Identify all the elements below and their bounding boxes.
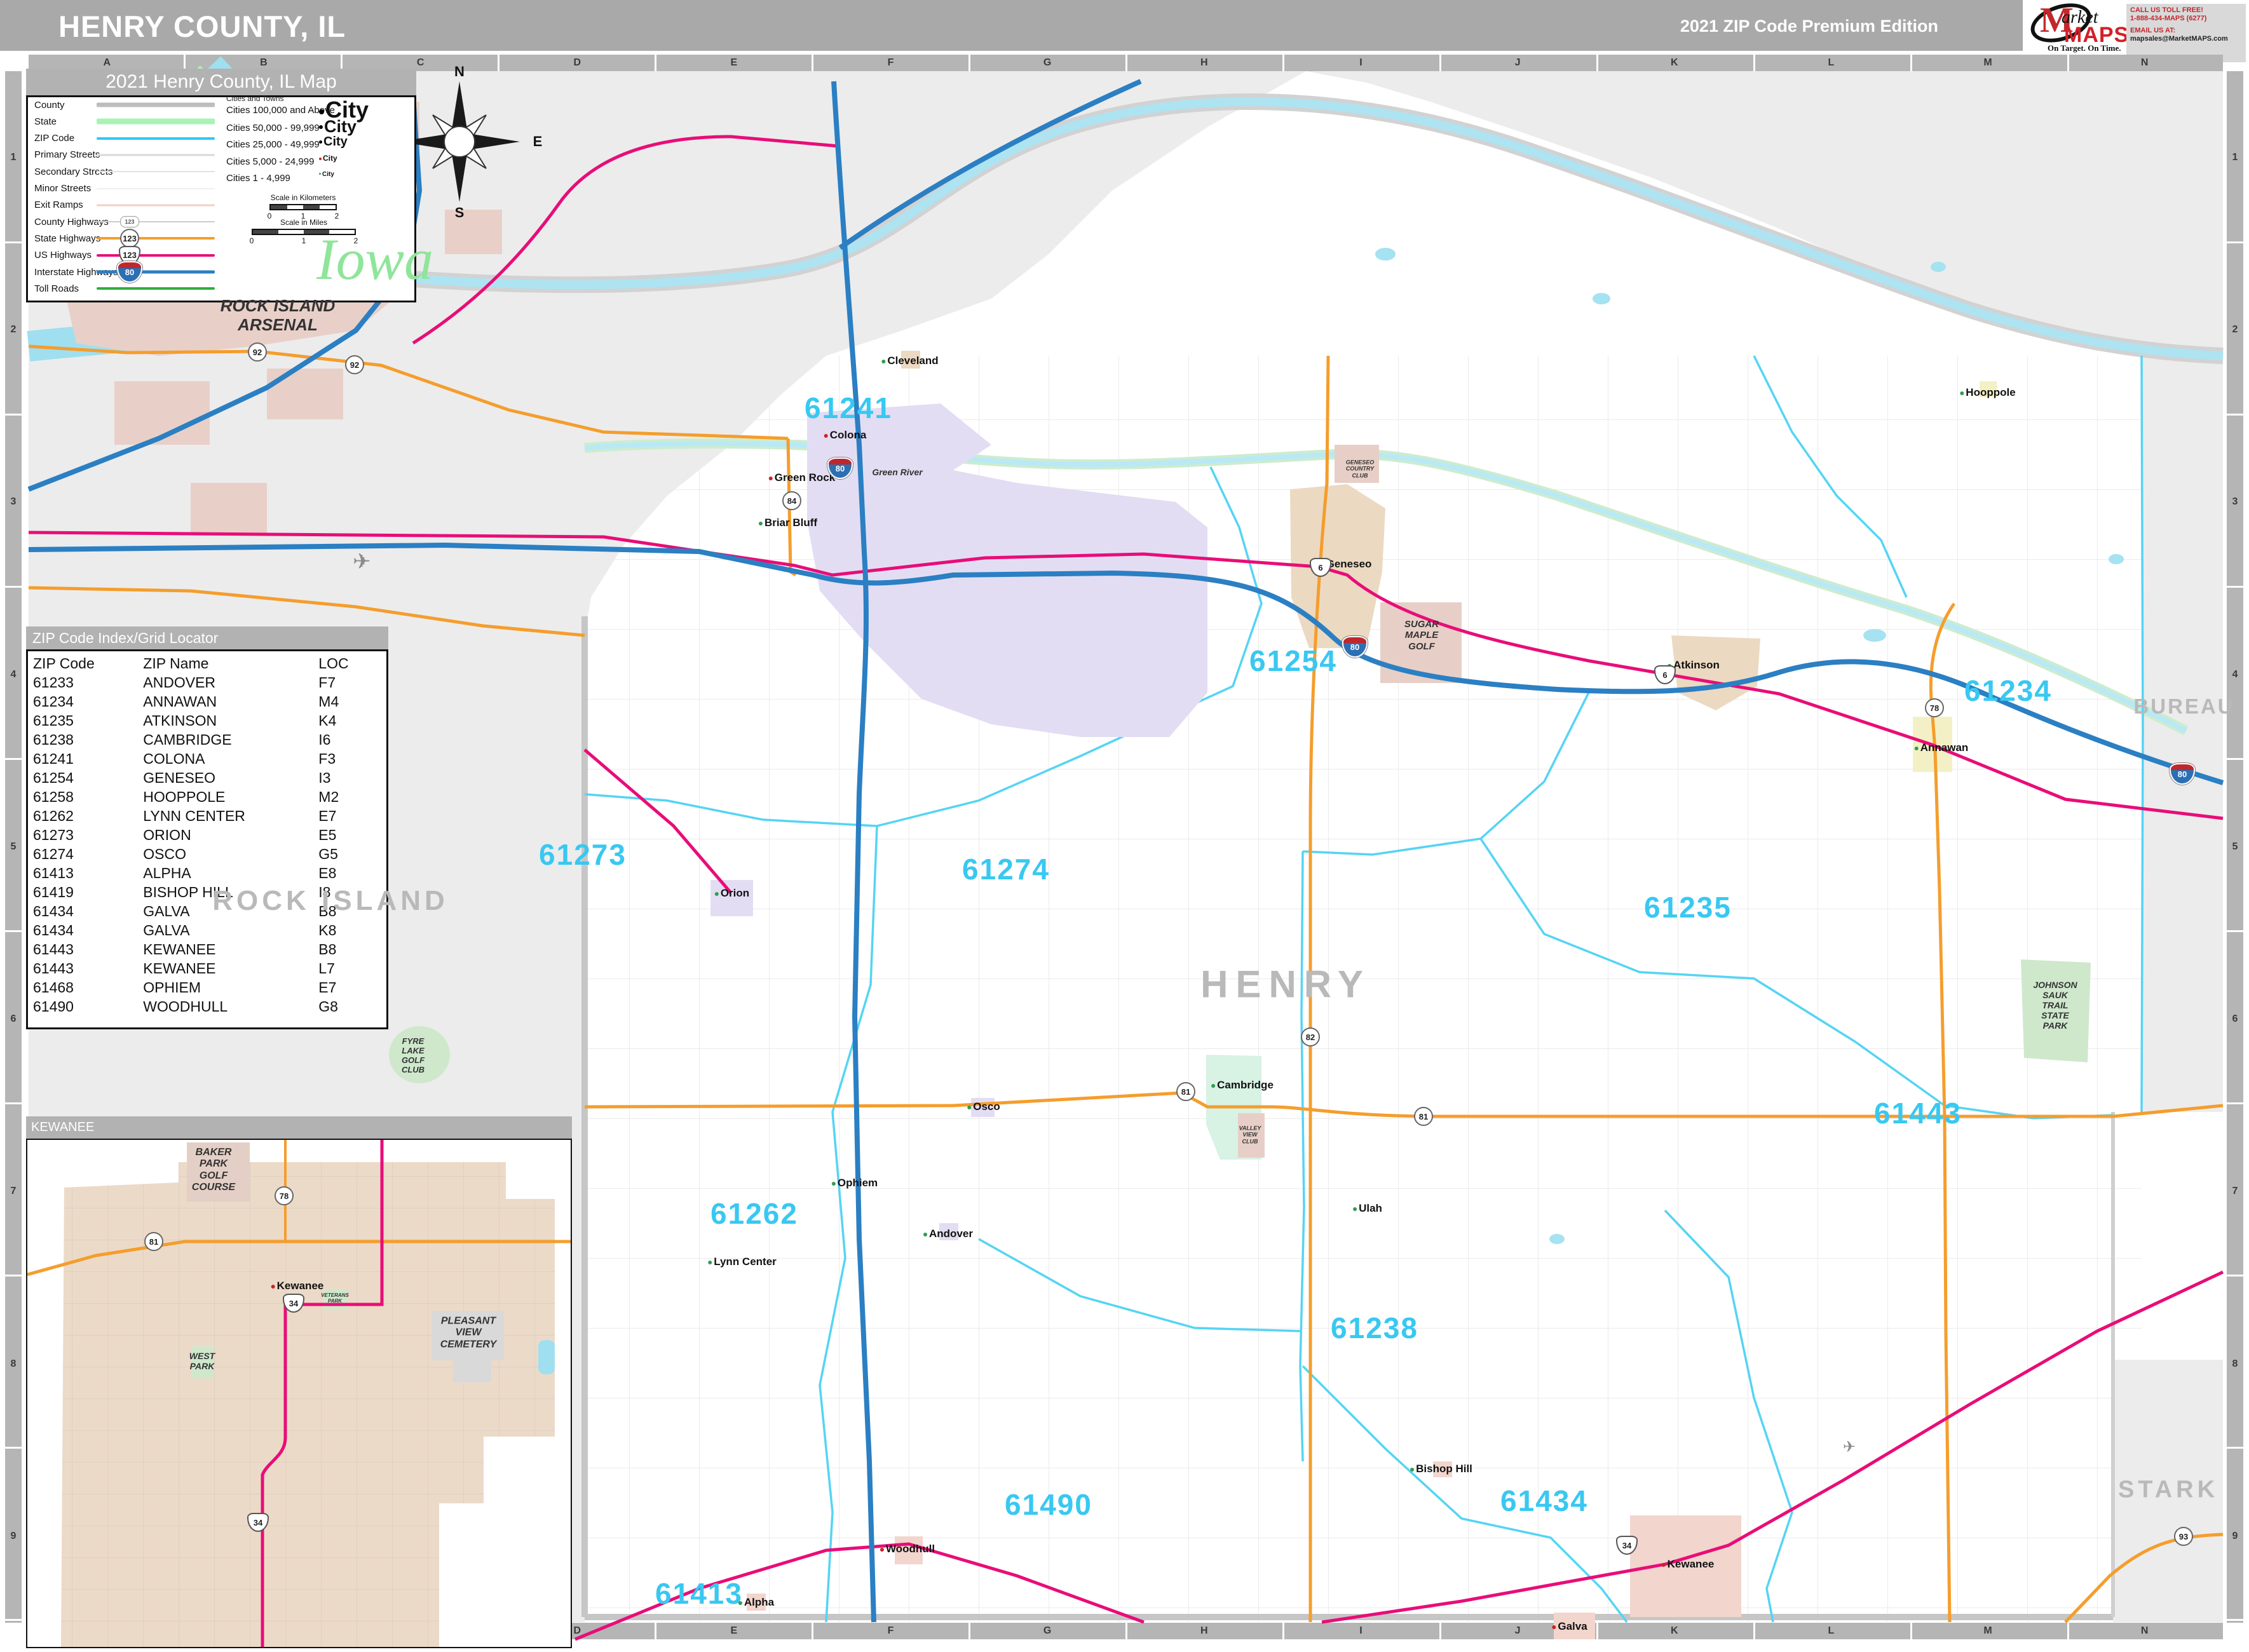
legend-row-label: County — [34, 100, 65, 111]
zip-loc-cell: E8 — [318, 863, 384, 883]
grid-row-label: 9 — [11, 1531, 17, 1542]
zip-code-cell: 61413 — [33, 863, 143, 883]
zip-code-cell: 61490 — [33, 997, 143, 1016]
legend-row-label: US Highways — [34, 250, 92, 261]
legend-row-label: Toll Roads — [34, 283, 79, 294]
grid-row-label: 8 — [11, 1358, 17, 1370]
zip-index-row: 61468OPHIEME7 — [33, 978, 384, 997]
zip-code-cell: 61262 — [33, 806, 143, 825]
legend-line-swatch — [97, 221, 215, 222]
grid-col-label-bottom: I — [1359, 1625, 1362, 1637]
city-class-sample: City — [319, 154, 337, 163]
legend-line-sample — [97, 165, 215, 178]
zip-code-cell: 61238 — [33, 730, 143, 749]
legend-line-swatch — [97, 271, 215, 274]
grid-row-label-right: 1 — [2232, 152, 2238, 163]
grid-col-label-bottom: M — [1983, 1625, 1992, 1637]
legend-line-swatch — [97, 237, 215, 240]
zip-code-cell: 61254 — [33, 768, 143, 787]
grid-col-label: L — [1828, 57, 1834, 69]
scalebar-segment — [304, 230, 329, 234]
grid-row-label: 5 — [11, 841, 17, 853]
zip-code-cell: 61443 — [33, 959, 143, 978]
city-class-label: Cities 5,000 - 24,999 — [226, 156, 314, 167]
legend-line-sample: 80 — [97, 266, 215, 278]
grid-col-label: I — [1359, 57, 1362, 69]
legend-row: Interstate Highways80 — [28, 264, 219, 280]
zip-loc-cell: E7 — [318, 978, 384, 997]
scalebar-segment — [278, 230, 304, 234]
zip-index-row: 61241COLONAF3 — [33, 749, 384, 768]
city-class-label: Cities 50,000 - 99,999 — [226, 123, 320, 133]
zip-index-row: 61413ALPHAE8 — [33, 863, 384, 883]
city-class-sample: City — [319, 171, 334, 178]
zip-index-row: 61434GALVAB8 — [33, 902, 384, 921]
grid-row-label-right: 6 — [2232, 1013, 2238, 1025]
zip-index-row: 61419BISHOP HILLI8 — [33, 883, 384, 902]
zip-index-row: 61274OSCOG5 — [33, 844, 384, 863]
zip-loc-cell: G5 — [318, 844, 384, 863]
grid-col-label: J — [1515, 57, 1521, 69]
legend-line-sample — [97, 149, 215, 161]
scalebar-tick: 0 — [268, 212, 272, 220]
legend-row-label: State — [34, 116, 57, 127]
zip-name-cell: KEWANEE — [143, 940, 318, 959]
legend-line-sample — [97, 115, 215, 128]
scalebar-tick: 1 — [302, 236, 306, 245]
compass-s: S — [455, 205, 465, 221]
inset-title: KEWANEE — [26, 1116, 572, 1139]
grid-col-label: M — [1983, 57, 1992, 69]
zip-name-cell: CAMBRIDGE — [143, 730, 318, 749]
legend-line-sample — [97, 132, 215, 145]
city-sample-text: City — [323, 154, 337, 163]
zip-index-row: 61254GENESEOI3 — [33, 768, 384, 787]
legend-row: Toll Roads — [28, 281, 219, 296]
zip-name-cell: ANNAWAN — [143, 692, 318, 711]
zip-index-row: 61490WOODHULLG8 — [33, 997, 384, 1016]
legend-title: 2021 Henry County, IL Map — [26, 69, 416, 95]
zip-code-cell: 61235 — [33, 711, 143, 730]
legend-line-swatch — [97, 137, 215, 140]
zip-loc-cell: E5 — [318, 825, 384, 844]
legend-row: County Highways123 — [28, 214, 219, 229]
zip-loc-cell: E7 — [318, 806, 384, 825]
zip-index-row: 61233ANDOVERF7 — [33, 673, 384, 692]
zip-col-header: LOC — [318, 654, 384, 673]
grid-col-label-bottom: L — [1828, 1625, 1834, 1637]
legend-row-label: Exit Ramps — [34, 200, 83, 210]
compass-n: N — [454, 64, 465, 80]
zip-name-cell: BISHOP HILL — [143, 883, 318, 902]
zip-name-cell: COLONA — [143, 749, 318, 768]
legend-row-label: State Highways — [34, 233, 100, 244]
grid-col-label-bottom: N — [2141, 1625, 2149, 1637]
grid-row-label: 3 — [11, 496, 17, 508]
zip-code-cell: 61434 — [33, 921, 143, 940]
zip-loc-cell: B8 — [318, 902, 384, 921]
scalebar — [269, 204, 337, 210]
scalebar-title: Scale in Miles — [280, 218, 327, 227]
zip-loc-cell: G8 — [318, 997, 384, 1016]
legend-line-sample: 123 — [97, 232, 215, 245]
grid-row-label: 6 — [11, 1013, 17, 1025]
zip-code-cell: 61258 — [33, 787, 143, 806]
legend-row-label: Primary Streets — [34, 149, 100, 160]
legend-row: US Highways123 — [28, 248, 219, 263]
scalebar-tick: 2 — [335, 212, 339, 220]
grid-col-label-bottom: H — [1200, 1625, 1208, 1637]
inset-map-panel — [26, 1139, 572, 1648]
grid-row-label-right: 8 — [2232, 1358, 2238, 1370]
legend-row: Secondary Streets — [28, 164, 219, 179]
legend-row: State — [28, 114, 219, 129]
legend-row: Primary Streets — [28, 147, 219, 163]
zip-loc-cell: F7 — [318, 673, 384, 692]
legend-line-sample — [97, 182, 215, 195]
zip-loc-cell: L7 — [318, 959, 384, 978]
compass-e: E — [533, 133, 543, 150]
zip-loc-cell: K8 — [318, 921, 384, 940]
svg-text:✈: ✈ — [1843, 1438, 1856, 1456]
scalebar-segment — [303, 205, 320, 209]
zip-index-row: 61443KEWANEEL7 — [33, 959, 384, 978]
zip-name-cell: OPHIEM — [143, 978, 318, 997]
city-sample-text: City — [323, 135, 348, 149]
zip-index-row: 61273ORIONE5 — [33, 825, 384, 844]
grid-col-label-bottom: K — [1671, 1625, 1678, 1637]
zip-name-cell: ALPHA — [143, 863, 318, 883]
grid-row-label: 4 — [11, 669, 17, 680]
grid-row-label-right: 5 — [2232, 841, 2238, 853]
zip-name-cell: KEWANEE — [143, 959, 318, 978]
legend-line-swatch — [97, 154, 215, 156]
zip-code-cell: 61274 — [33, 844, 143, 863]
legend-line-swatch — [97, 287, 215, 290]
grid-col-label: A — [104, 57, 111, 69]
zip-code-cell: 61234 — [33, 692, 143, 711]
grid-col-label: H — [1200, 57, 1208, 69]
grid-col-label-bottom: F — [888, 1625, 894, 1637]
city-dot-icon — [319, 173, 321, 175]
zip-loc-cell: B8 — [318, 940, 384, 959]
grid-col-label-bottom: J — [1515, 1625, 1521, 1637]
zip-index-table: ZIP CodeZIP NameLOC 61233ANDOVERF761234A… — [33, 654, 384, 1016]
city-class-label: Cities 25,000 - 49,999 — [226, 139, 320, 150]
grid-col-label: G — [1043, 57, 1051, 69]
state-route-shield-icon: 123 — [120, 216, 139, 227]
grid-col-label: K — [1671, 57, 1678, 69]
legend-line-swatch — [97, 103, 215, 107]
inset-map-canvas — [27, 1140, 571, 1647]
legend-row: ZIP Code — [28, 131, 219, 146]
map-page: ✈ ✈ HENRY COUNTY, IL 2021 ZIP Code Premi… — [0, 0, 2249, 1652]
city-class-sample: City — [319, 135, 348, 149]
scalebar-segment — [253, 230, 278, 234]
scalebar-tick: 2 — [354, 236, 358, 245]
zip-loc-cell: I8 — [318, 883, 384, 902]
zip-name-cell: ATKINSON — [143, 711, 318, 730]
legend-line-sample — [97, 199, 215, 212]
zip-code-cell: 61419 — [33, 883, 143, 902]
legend-line-swatch — [97, 171, 215, 172]
legend-line-swatch — [97, 204, 215, 206]
legend-line-swatch — [97, 119, 215, 125]
grid-row-label-right: 4 — [2232, 669, 2238, 680]
zip-loc-cell: K4 — [318, 711, 384, 730]
city-dot-icon — [319, 109, 324, 114]
svg-text:✈: ✈ — [353, 549, 371, 574]
zip-code-cell: 61233 — [33, 673, 143, 692]
zip-name-cell: GALVA — [143, 902, 318, 921]
zip-code-cell: 61443 — [33, 940, 143, 959]
zip-index-row: 61434GALVAK8 — [33, 921, 384, 940]
zip-index-row: 61443KEWANEEB8 — [33, 940, 384, 959]
zip-loc-cell: I6 — [318, 730, 384, 749]
grid-row-label: 1 — [11, 152, 17, 163]
zip-name-cell: WOODHULL — [143, 997, 318, 1016]
legend-row-label: ZIP Code — [34, 133, 74, 144]
city-sample-text: City — [324, 117, 357, 136]
zip-col-header: ZIP Code — [33, 654, 143, 673]
zip-loc-cell: I3 — [318, 768, 384, 787]
grid-row-label: 2 — [11, 324, 17, 335]
grid-col-label-bottom: E — [731, 1625, 738, 1637]
legend-row: County — [28, 97, 219, 112]
zip-name-cell: LYNN CENTER — [143, 806, 318, 825]
zip-name-cell: ANDOVER — [143, 673, 318, 692]
city-dot-icon — [319, 125, 323, 129]
zip-loc-cell: F3 — [318, 749, 384, 768]
grid-col-label: C — [417, 57, 425, 69]
legend-line-swatch — [97, 188, 215, 189]
zip-index-header-row: ZIP CodeZIP NameLOC — [33, 654, 384, 673]
grid-row-label-right: 2 — [2232, 324, 2238, 335]
legend-line-sample: 123 — [97, 249, 215, 262]
zip-name-cell: GALVA — [143, 921, 318, 940]
legend-line-swatch — [97, 254, 215, 257]
zip-name-cell: ORION — [143, 825, 318, 844]
grid-row-label-right: 3 — [2232, 496, 2238, 508]
legend-row: Exit Ramps — [28, 198, 219, 213]
city-dot-icon — [319, 158, 322, 160]
grid-col-label-bottom: D — [573, 1625, 581, 1637]
legend-row-label: Minor Streets — [34, 183, 91, 194]
scalebar-segment — [287, 205, 304, 209]
grid-row-label: 7 — [11, 1186, 17, 1197]
scalebar-segment — [271, 205, 287, 209]
zip-code-cell: 61241 — [33, 749, 143, 768]
zip-name-cell: GENESEO — [143, 768, 318, 787]
zip-code-cell: 61273 — [33, 825, 143, 844]
legend-row: State Highways123 — [28, 231, 219, 246]
scalebar-title: Scale in Kilometers — [271, 193, 336, 202]
legend-panel: CountyStateZIP CodePrimary StreetsSecond… — [26, 95, 416, 302]
grid-col-label: B — [260, 57, 268, 69]
scalebar — [252, 229, 356, 235]
grid-col-label-bottom: G — [1043, 1625, 1051, 1637]
zip-index-row: 61238CAMBRIDGEI6 — [33, 730, 384, 749]
legend-line-sample — [97, 282, 215, 295]
city-class-sample: City — [319, 117, 357, 137]
zip-name-cell: HOOPPOLE — [143, 787, 318, 806]
legend-row: Minor Streets — [28, 181, 219, 196]
grid-col-label: D — [573, 57, 581, 69]
grid-col-label: N — [2141, 57, 2149, 69]
city-dot-icon — [319, 140, 322, 144]
zip-loc-cell: M4 — [318, 692, 384, 711]
grid-row-label-right: 7 — [2232, 1186, 2238, 1197]
zip-index-row: 61235ATKINSONK4 — [33, 711, 384, 730]
zip-index-row: 61258HOOPPOLEM2 — [33, 787, 384, 806]
legend-line-sample — [97, 98, 215, 111]
city-class-label: Cities 1 - 4,999 — [226, 173, 290, 184]
city-sample-text: City — [322, 171, 334, 178]
scalebar-segment — [329, 230, 355, 234]
zip-col-header: ZIP Name — [143, 654, 318, 673]
scalebar-segment — [320, 205, 336, 209]
zip-index-title: ZIP Code Index/Grid Locator — [26, 626, 388, 649]
scalebar-tick: 0 — [250, 236, 254, 245]
grid-row-label-right: 9 — [2232, 1531, 2238, 1542]
grid-col-label: F — [888, 57, 894, 69]
zip-index-panel: ZIP CodeZIP NameLOC 61233ANDOVERF761234A… — [26, 649, 388, 1029]
zip-code-cell: 61434 — [33, 902, 143, 921]
zip-code-cell: 61468 — [33, 978, 143, 997]
cities-towns-title: Cities and Towns — [226, 94, 284, 103]
legend-line-sample: 123 — [97, 215, 215, 228]
zip-name-cell: OSCO — [143, 844, 318, 863]
interstate-shield-icon: 80 — [117, 261, 142, 283]
zip-loc-cell: M2 — [318, 787, 384, 806]
grid-col-label: E — [731, 57, 738, 69]
zip-index-row: 61234ANNAWANM4 — [33, 692, 384, 711]
zip-index-row: 61262LYNN CENTERE7 — [33, 806, 384, 825]
